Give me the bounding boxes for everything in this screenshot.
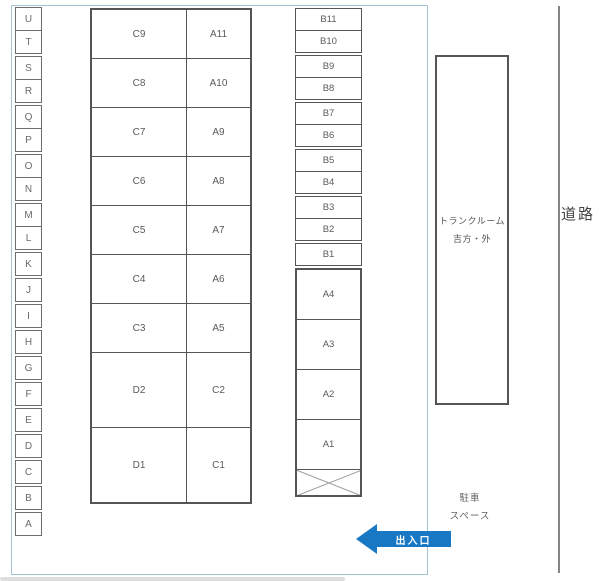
unit-cell: A7: [186, 206, 250, 254]
unit-cell: B8: [296, 77, 361, 99]
trunk-room-label-line1: トランクルーム: [439, 212, 505, 230]
unit-row: D2 C2: [92, 352, 250, 427]
trunk-room-label-line2: 吉方・外: [453, 230, 491, 248]
row-letter: F: [16, 383, 41, 405]
letter-group: C: [15, 460, 42, 484]
unit-cell: A2: [297, 369, 360, 419]
unit-cell: B7: [296, 103, 361, 124]
row-letter: P: [16, 128, 41, 151]
letter-group: A: [15, 512, 42, 536]
unit-cell: A3: [297, 319, 360, 369]
unit-cell: B9: [296, 56, 361, 77]
row-letter: J: [16, 279, 41, 301]
unit-pair: B9 B8: [295, 55, 362, 100]
row-letter: A: [16, 513, 41, 535]
unit-cell: A5: [186, 304, 250, 352]
row-letter: R: [16, 79, 41, 102]
crossed-out-cell: [297, 469, 360, 495]
unit-cell: B11: [296, 9, 361, 30]
b-unit-column: B11 B10 B9 B8 B7 B6 B5 B4 B3 B2 B1 A4 A3…: [295, 8, 362, 497]
row-letter: T: [16, 30, 41, 53]
unit-cell: A9: [186, 108, 250, 156]
row-letter: I: [16, 305, 41, 327]
unit-cell: D1: [92, 428, 186, 502]
unit-cell: B5: [296, 150, 361, 171]
row-letter: S: [16, 57, 41, 79]
letter-group: M L: [15, 203, 42, 250]
row-letter: C: [16, 461, 41, 483]
unit-row: C3 A5: [92, 303, 250, 352]
row-letter: H: [16, 331, 41, 353]
unit-cell: C6: [92, 157, 186, 205]
letter-group: Q P: [15, 105, 42, 152]
unit-pair: B11 B10: [295, 8, 362, 53]
unit-cell: B4: [296, 171, 361, 193]
unit-pair: B5 B4: [295, 149, 362, 194]
row-letter: B: [16, 487, 41, 509]
arrow-left-icon: [356, 524, 377, 554]
parking-space-label-line1: 駐車: [438, 490, 502, 508]
letter-group: F: [15, 382, 42, 406]
entrance-arrow: 出入口: [356, 523, 451, 555]
letter-group: B: [15, 486, 42, 510]
unit-cell: C9: [92, 10, 186, 58]
letter-group: K: [15, 252, 42, 276]
row-letter: O: [16, 155, 41, 177]
unit-cell: C2: [186, 353, 250, 427]
unit-pair: B3 B2: [295, 196, 362, 241]
row-letter-column: U T S R Q P O N M L K J I H: [15, 7, 42, 536]
letter-group: O N: [15, 154, 42, 201]
unit-cell: A10: [186, 59, 250, 107]
letter-group: D: [15, 434, 42, 458]
row-letter: Q: [16, 106, 41, 128]
unit-row: C8 A10: [92, 58, 250, 107]
letter-group: E: [15, 408, 42, 432]
trunk-room-building: トランクルーム 吉方・外: [435, 55, 509, 405]
unit-row: C5 A7: [92, 205, 250, 254]
unit-pair: B7 B6: [295, 102, 362, 147]
unit-cell: B1: [296, 244, 361, 265]
letter-group: J: [15, 278, 42, 302]
unit-cell: C7: [92, 108, 186, 156]
unit-cell: A6: [186, 255, 250, 303]
unit-cell: A8: [186, 157, 250, 205]
row-letter: E: [16, 409, 41, 431]
row-letter: U: [16, 8, 41, 30]
letter-group: I: [15, 304, 42, 328]
unit-cell: B10: [296, 30, 361, 52]
unit-row: C7 A9: [92, 107, 250, 156]
road-edge-line: [558, 6, 560, 573]
unit-cell: A11: [186, 10, 250, 58]
parking-layout-diagram: U T S R Q P O N M L K J I H: [0, 0, 600, 581]
unit-cell: C1: [186, 428, 250, 502]
row-letter: L: [16, 226, 41, 249]
row-letter: G: [16, 357, 41, 379]
a-unit-section: A4 A3 A2 A1: [295, 268, 362, 497]
entrance-arrow-body: 出入口: [376, 531, 451, 547]
parking-space-label: 駐車 スペース: [438, 490, 502, 526]
unit-row: C6 A8: [92, 156, 250, 205]
unit-cell: A1: [297, 419, 360, 469]
letter-group: U T: [15, 7, 42, 54]
letter-group: S R: [15, 56, 42, 103]
unit-cell: C5: [92, 206, 186, 254]
scan-artifact: [0, 577, 345, 581]
letter-group: G: [15, 356, 42, 380]
row-letter: N: [16, 177, 41, 200]
road-label: 道路: [561, 203, 595, 224]
unit-row: D1 C1: [92, 427, 250, 502]
row-letter: D: [16, 435, 41, 457]
unit-cell: C3: [92, 304, 186, 352]
unit-cell: B2: [296, 218, 361, 240]
row-letter: M: [16, 204, 41, 226]
unit-row: C4 A6: [92, 254, 250, 303]
unit-row: C9 A11: [92, 10, 250, 58]
unit-pair: B1: [295, 243, 362, 266]
unit-cell: C4: [92, 255, 186, 303]
unit-cell: C8: [92, 59, 186, 107]
unit-cell: A4: [297, 270, 360, 319]
entrance-label: 出入口: [396, 532, 432, 547]
row-letter: K: [16, 253, 41, 275]
main-unit-block: C9 A11 C8 A10 C7 A9 C6 A8 C5 A7 C4 A6 C3…: [90, 8, 252, 504]
unit-cell: B6: [296, 124, 361, 146]
letter-group: H: [15, 330, 42, 354]
unit-cell: D2: [92, 353, 186, 427]
unit-cell: B3: [296, 197, 361, 218]
